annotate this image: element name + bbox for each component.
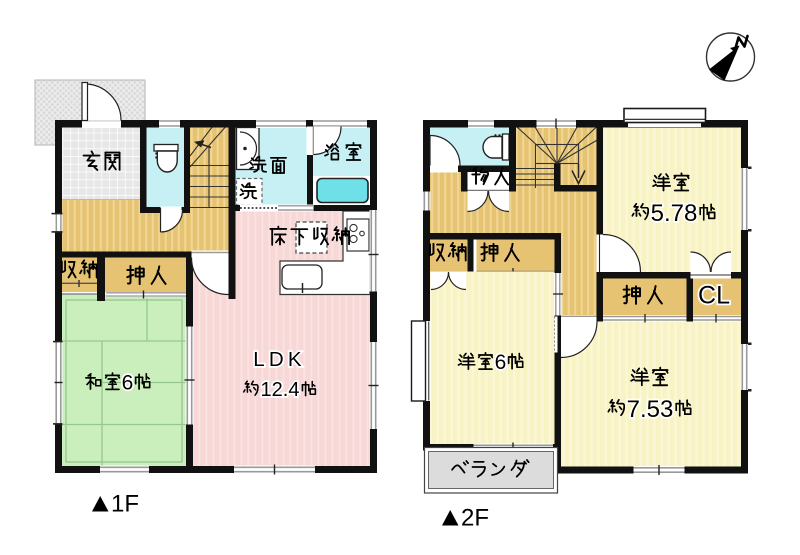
svg-text:CL: CL	[698, 282, 730, 310]
svg-text:2F: 2F	[461, 505, 489, 532]
svg-text:1F: 1F	[111, 491, 139, 518]
svg-text:5.78: 5.78	[651, 200, 698, 227]
svg-text:6: 6	[122, 371, 134, 394]
svg-text:LDK: LDK	[253, 348, 305, 371]
svg-text:7.53: 7.53	[627, 396, 674, 423]
svg-text:12.4: 12.4	[261, 379, 300, 401]
svg-text:6: 6	[495, 351, 507, 374]
